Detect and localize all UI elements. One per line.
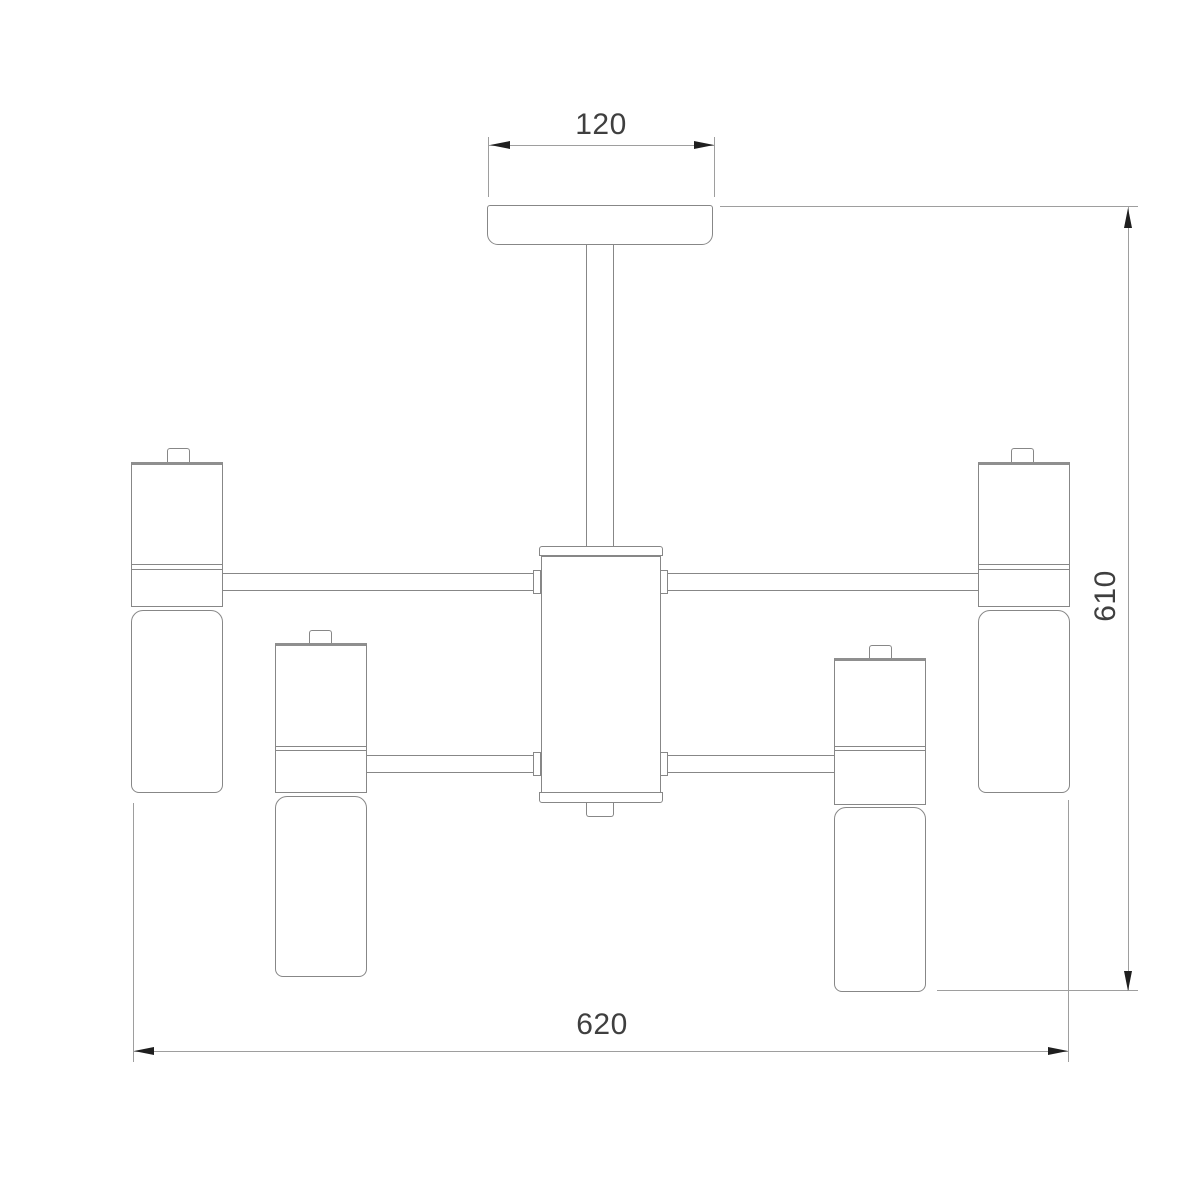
dim-120-arrow-right-icon	[694, 141, 714, 149]
central-top-cap	[539, 546, 663, 556]
outer-right-lamp-nipple	[1011, 448, 1034, 463]
dim-canopy-width-label: 120	[521, 109, 681, 141]
dim-620-arrow-right-icon	[1048, 1047, 1068, 1055]
hanger-stem	[586, 245, 614, 552]
outer-left-lamp-body	[131, 462, 223, 565]
central-bottom-cap	[539, 792, 663, 803]
outer-left-lamp-nipple	[167, 448, 190, 463]
arm-connector-lower-right	[660, 752, 668, 776]
dim-620-extension-right	[1068, 800, 1069, 1062]
dim-610-line	[1128, 207, 1129, 991]
inner-left-lamp-shade	[275, 796, 367, 977]
arm-connector-upper-left	[533, 570, 541, 594]
dim-overall-height-label: 610	[1090, 516, 1122, 676]
upper-right-arm	[668, 573, 979, 591]
arm-connector-lower-left	[533, 752, 541, 776]
technical-drawing-canvas: 120 610 620	[0, 0, 1200, 1200]
inner-right-lamp-socket	[834, 751, 926, 805]
inner-left-lamp-body	[275, 643, 367, 747]
dim-120-extension-left	[488, 137, 489, 197]
dim-610-extension-bottom	[937, 990, 1138, 991]
arm-connector-upper-right	[660, 570, 668, 594]
inner-left-lamp-socket	[275, 751, 367, 793]
dim-620-line	[133, 1051, 1069, 1052]
lower-left-arm	[366, 755, 534, 773]
outer-right-lamp-body	[978, 462, 1070, 565]
outer-right-lamp-socket	[978, 570, 1070, 607]
central-body	[541, 556, 661, 794]
dim-120-extension-right	[714, 137, 715, 197]
upper-left-arm	[222, 573, 534, 591]
ceiling-canopy	[487, 205, 713, 245]
outer-left-lamp-socket	[131, 570, 223, 607]
outer-right-lamp-shade	[978, 610, 1070, 793]
dim-overall-width-label: 620	[522, 1009, 682, 1041]
dim-120-arrow-left-icon	[490, 141, 510, 149]
dim-610-arrow-up-icon	[1124, 208, 1132, 228]
dim-620-arrow-left-icon	[134, 1047, 154, 1055]
inner-right-lamp-body	[834, 658, 926, 747]
dim-610-extension-top	[720, 206, 1138, 207]
dim-120-line	[489, 145, 715, 146]
dim-610-arrow-down-icon	[1124, 971, 1132, 991]
inner-right-lamp-shade	[834, 807, 926, 992]
outer-left-lamp-shade	[131, 610, 223, 793]
dim-620-extension-left	[133, 803, 134, 1062]
lower-right-arm	[668, 755, 835, 773]
